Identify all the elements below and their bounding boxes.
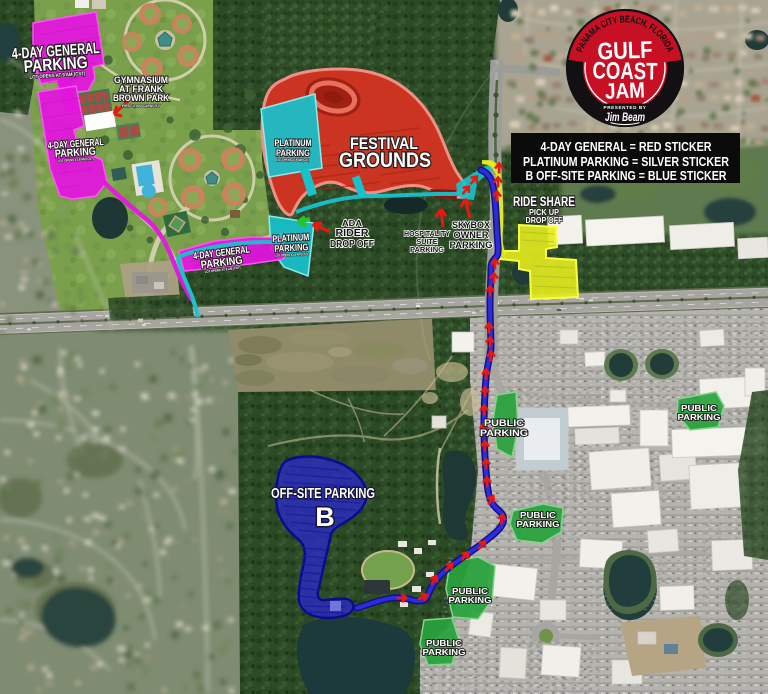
svg-text:OFF-SITE PARKING: OFF-SITE PARKING xyxy=(271,486,375,502)
svg-text:PARKING: PARKING xyxy=(517,519,560,529)
svg-text:PARKING: PARKING xyxy=(423,647,466,657)
svg-text:OWNER: OWNER xyxy=(454,230,490,240)
svg-text:PLATINUM PARKING = SILVER STIC: PLATINUM PARKING = SILVER STICKER xyxy=(523,155,729,169)
svg-text:JAM: JAM xyxy=(605,77,646,103)
svg-text:PARKING: PARKING xyxy=(678,412,721,422)
svg-text:LOT OPENS AT 9 AM (CST): LOT OPENS AT 9 AM (CST) xyxy=(277,158,310,162)
svg-text:4-DAY GENERAL = RED STICKER: 4-DAY GENERAL = RED STICKER xyxy=(541,140,712,154)
svg-text:RIDE SHARE: RIDE SHARE xyxy=(513,194,575,209)
svg-text:FIRST 3,000 CAPACITY: FIRST 3,000 CAPACITY xyxy=(122,103,160,108)
svg-text:PRESENTED BY: PRESENTED BY xyxy=(604,105,647,110)
svg-text:GROUNDS: GROUNDS xyxy=(339,149,431,172)
svg-text:PARKING: PARKING xyxy=(449,595,492,605)
svg-text:B: B xyxy=(315,502,335,532)
svg-text:DROP OFF: DROP OFF xyxy=(330,238,374,250)
svg-text:DROP OFF: DROP OFF xyxy=(526,216,563,225)
svg-text:PARKING: PARKING xyxy=(410,245,444,254)
svg-text:PARKING: PARKING xyxy=(450,240,493,250)
svg-text:SKYBOX: SKYBOX xyxy=(452,220,490,230)
svg-text:B OFF-SITE PARKING = BLUE STI: B OFF-SITE PARKING = BLUE STICKER xyxy=(526,169,727,183)
svg-text:PARKING: PARKING xyxy=(480,428,528,439)
svg-text:BROWN PARK: BROWN PARK xyxy=(113,93,169,103)
